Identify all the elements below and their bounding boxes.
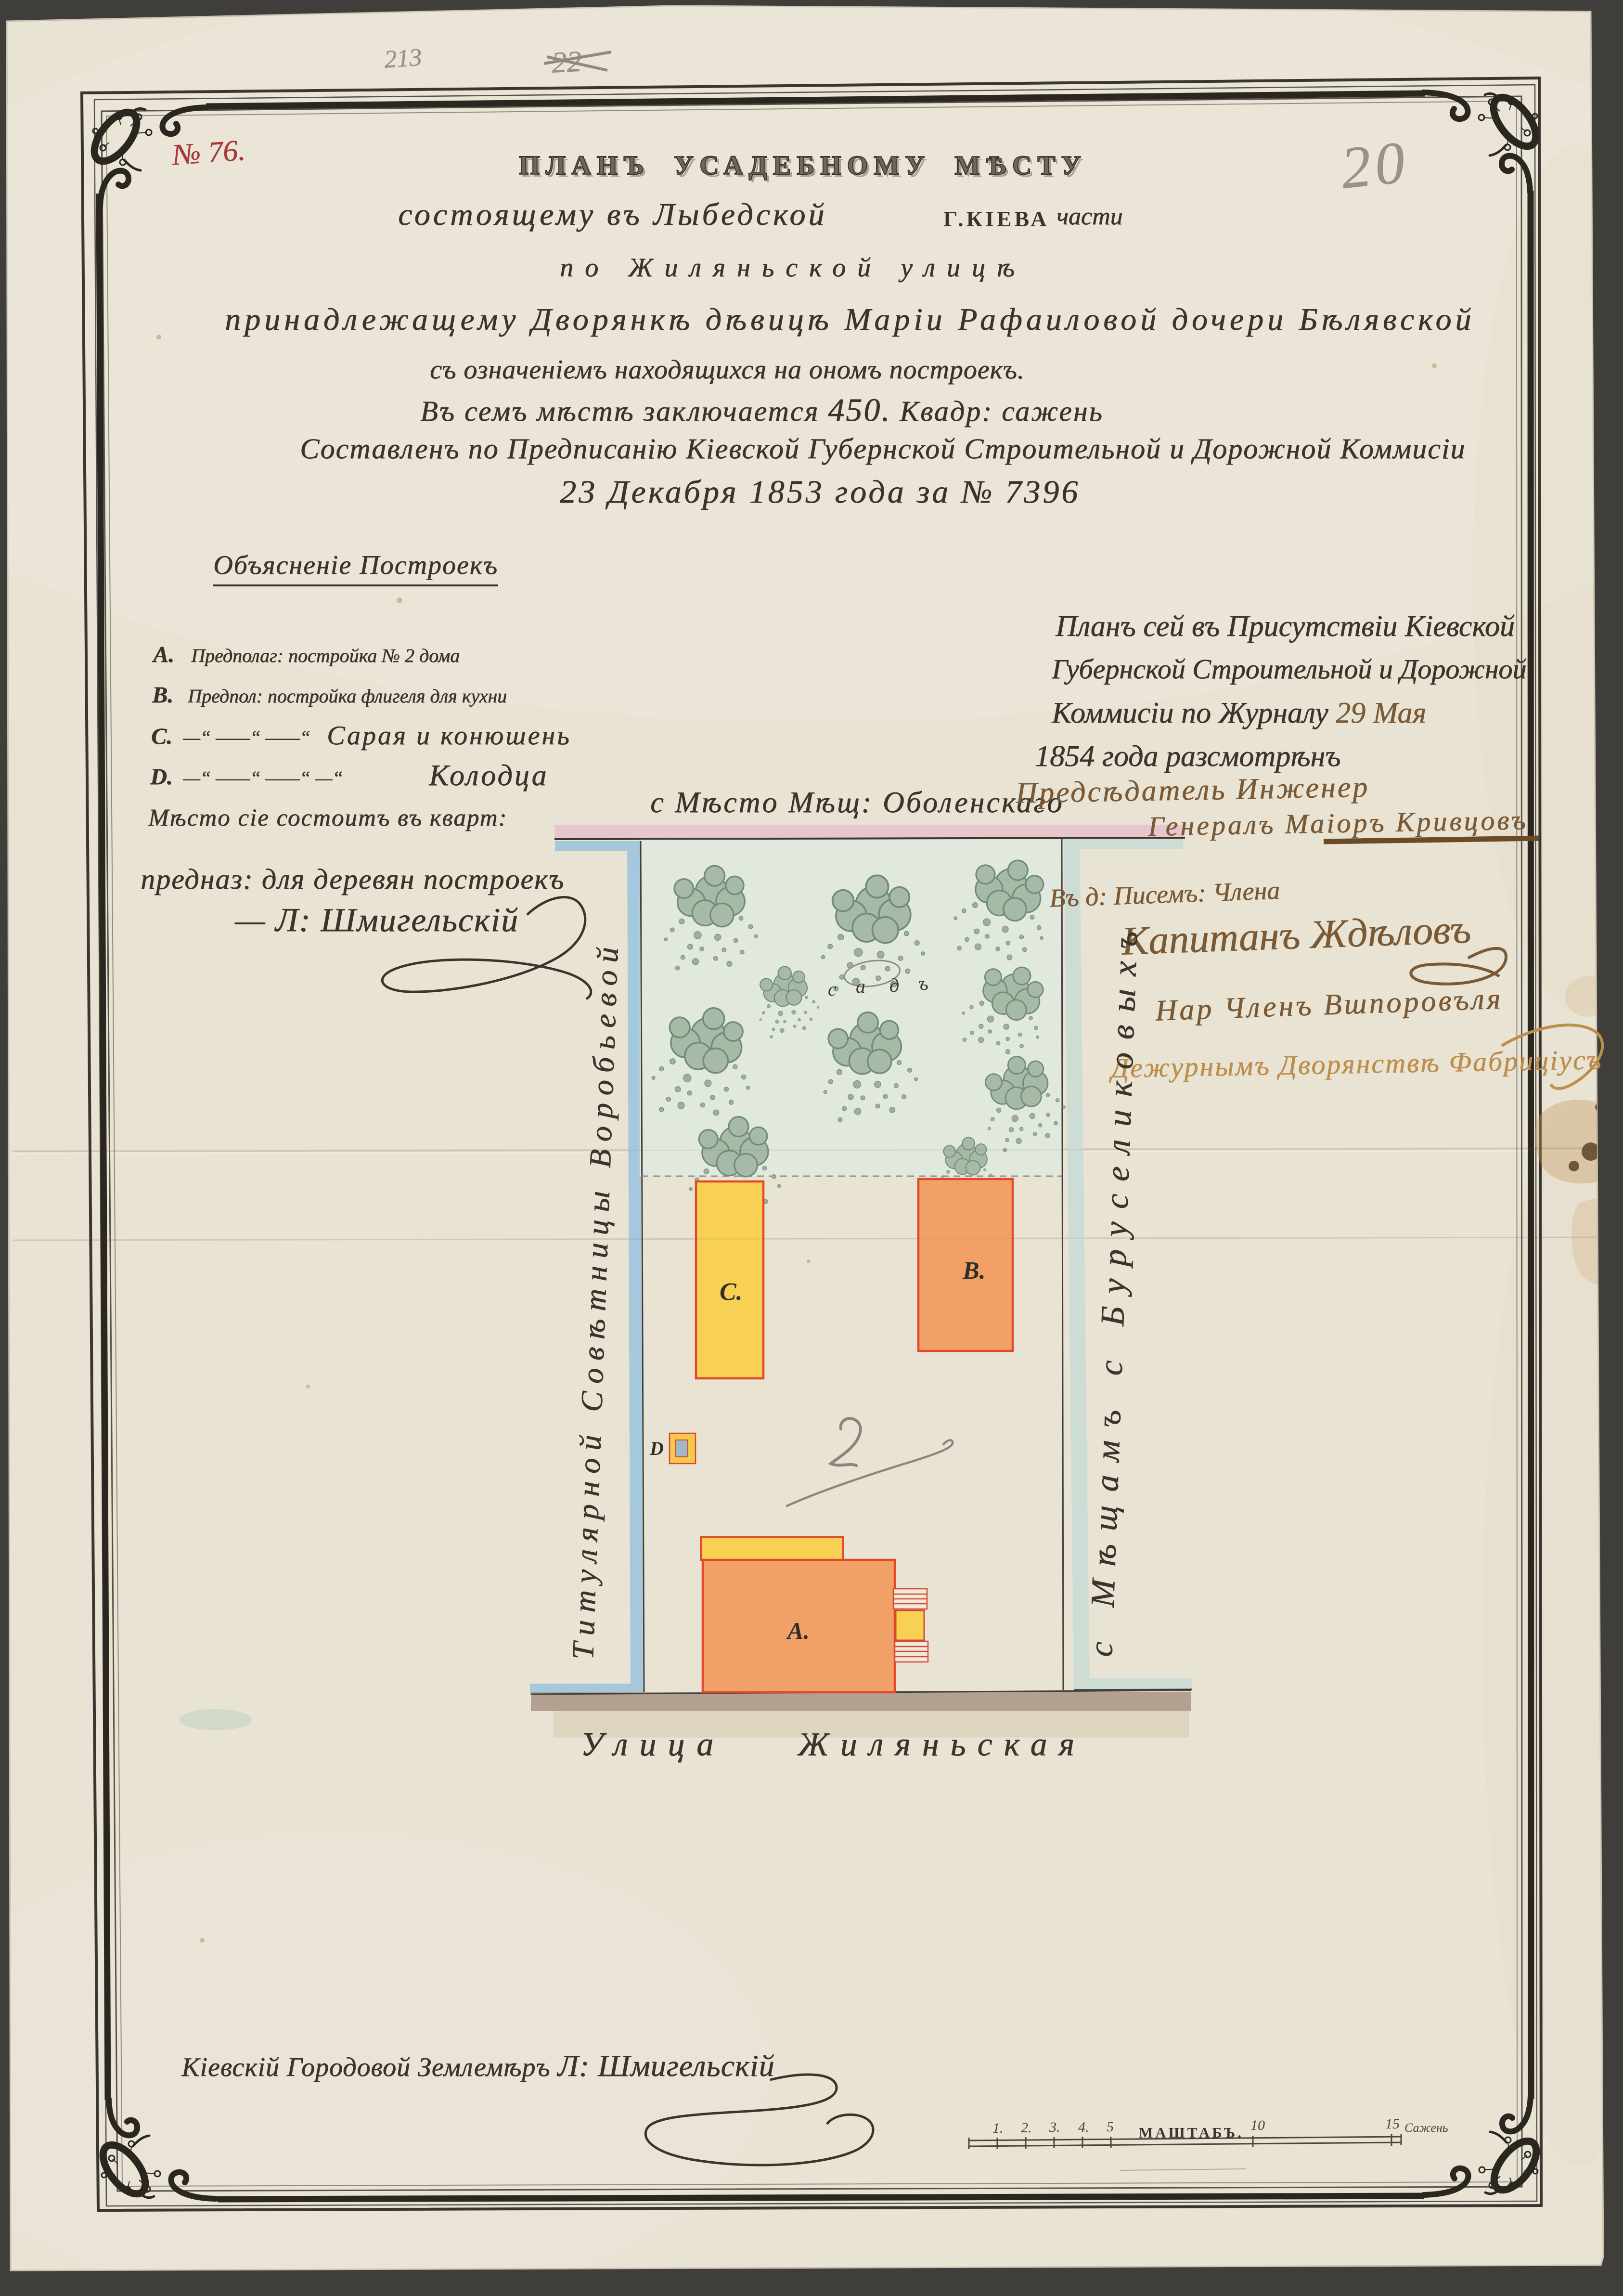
svg-text:Сажень: Сажень	[1404, 2121, 1448, 2135]
svg-text:3.: 3.	[1049, 2119, 1060, 2135]
svg-text:2.: 2.	[1021, 2120, 1032, 2136]
svg-text:1.: 1.	[992, 2120, 1004, 2136]
svg-text:15: 15	[1385, 2116, 1400, 2132]
svg-text:5: 5	[1107, 2119, 1114, 2135]
svg-text:4.: 4.	[1078, 2119, 1089, 2135]
svg-text:10: 10	[1250, 2117, 1265, 2133]
svg-text:МАШТАБЪ.: МАШТАБЪ.	[1139, 2124, 1244, 2141]
